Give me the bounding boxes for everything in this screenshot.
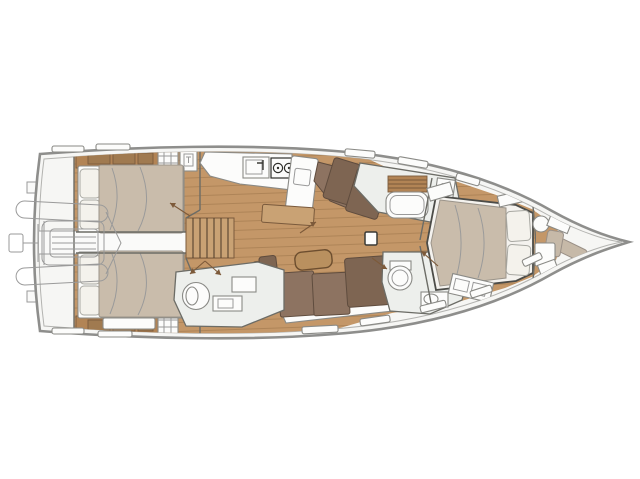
galley-sink (243, 157, 269, 178)
deck-hatch (52, 328, 84, 334)
galley-bench (261, 204, 314, 226)
aft-cabin-port (76, 149, 200, 233)
outboard-motor (9, 234, 23, 252)
aft-head (174, 262, 284, 327)
yacht-layout-diagram: Sailing yacht interior deck layout plan,… (0, 0, 640, 479)
deck-hatch (96, 144, 130, 150)
round-washbasin (533, 216, 549, 232)
deck-hatch (52, 146, 84, 152)
mast-base (365, 232, 377, 245)
pillow (80, 286, 100, 315)
shelf-locker (113, 153, 135, 164)
island-bed-mattress (431, 200, 506, 286)
pillow (506, 210, 531, 242)
shelf-locker (138, 153, 153, 164)
slatted-shelf (388, 176, 427, 192)
bed-end-bench (103, 318, 155, 329)
locker (232, 277, 256, 292)
double-bed-mattress (99, 251, 183, 317)
coffee-table (294, 249, 333, 271)
interior (36, 146, 588, 334)
bathtub (386, 192, 428, 218)
sofa-seat-cushion (312, 272, 350, 316)
toilet (186, 287, 198, 305)
deck-hatch (302, 325, 338, 334)
floor-plan-canvas: Sailing yacht interior deck layout plan,… (0, 0, 640, 479)
pillow (80, 255, 100, 284)
washbasin-counter (213, 296, 242, 311)
pillow (80, 169, 100, 198)
deck-hatch (98, 331, 132, 337)
